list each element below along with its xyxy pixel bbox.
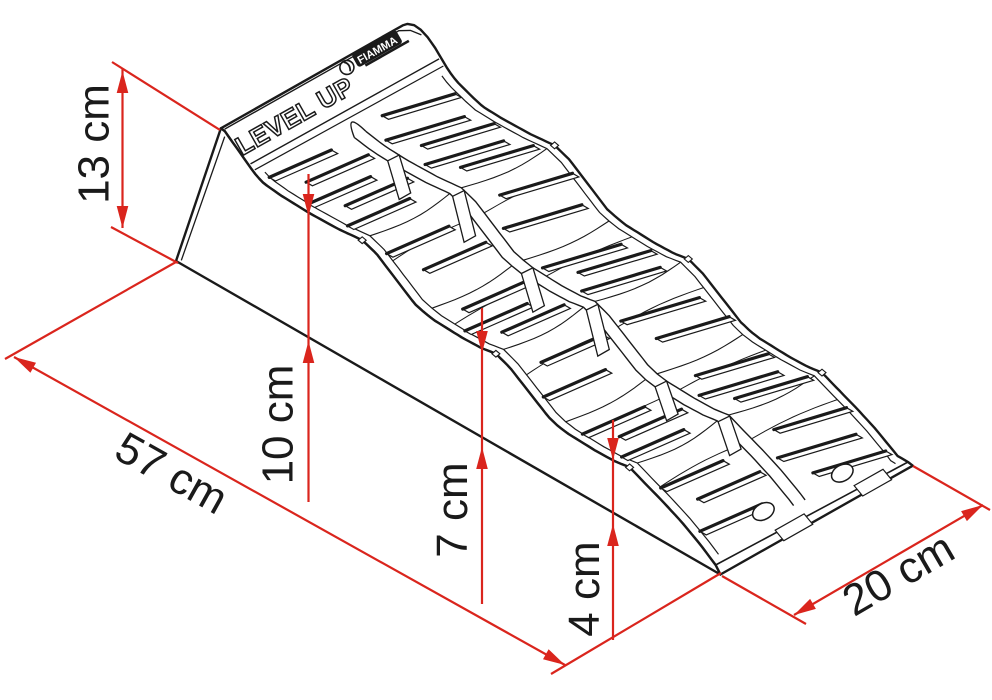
svg-text:20 cm: 20 cm [834, 523, 962, 626]
svg-text:10 cm: 10 cm [254, 365, 303, 485]
svg-text:4 cm: 4 cm [560, 541, 609, 636]
svg-text:57 cm: 57 cm [107, 423, 236, 524]
svg-text:13 cm: 13 cm [70, 84, 119, 204]
svg-text:7 cm: 7 cm [428, 462, 477, 557]
